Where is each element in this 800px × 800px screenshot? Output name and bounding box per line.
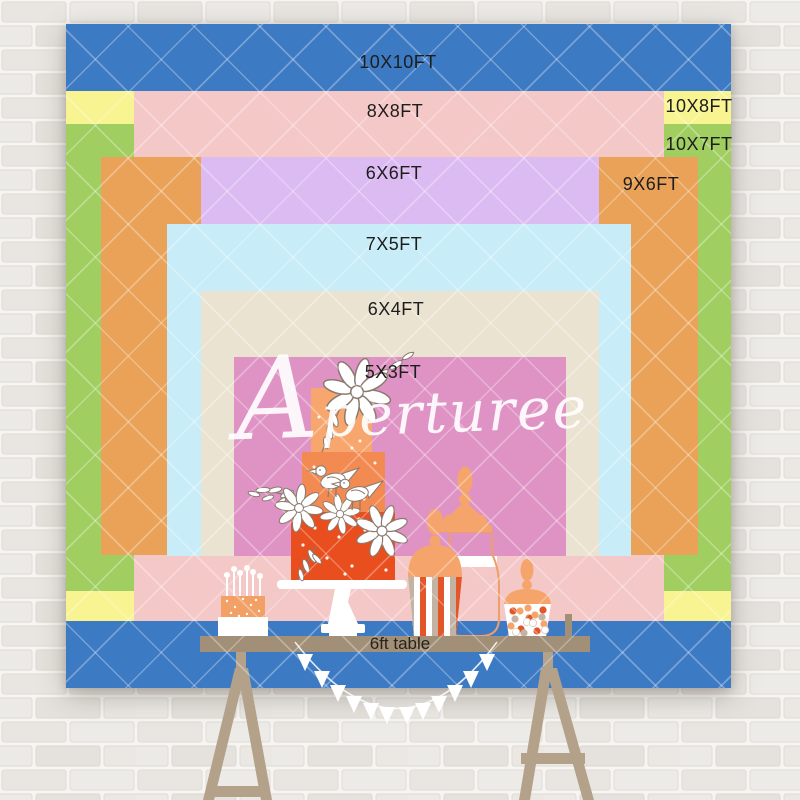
table-leg-right xyxy=(519,652,594,800)
small-cake-icon xyxy=(218,565,268,637)
cake-stand-icon xyxy=(277,580,407,637)
size-label-6x6: 6X6FT xyxy=(334,163,454,183)
size-label-6x4: 6X4FT xyxy=(336,299,456,319)
table-post xyxy=(565,614,572,638)
size-label-10x8: 10X8FT xyxy=(639,96,759,116)
size-label-9x6: 9X6FT xyxy=(591,174,711,194)
product-image: 10X10FT 8X8FT 10X8FT 6X6FT 10X7FT 7X5FT … xyxy=(0,0,800,800)
table-length-label: 6ft table xyxy=(340,636,460,652)
candy-jar-icon xyxy=(504,559,551,637)
size-label-7x5: 7X5FT xyxy=(334,234,454,254)
size-label-8x8: 8X8FT xyxy=(335,101,455,121)
jar-lid-icon xyxy=(438,467,492,533)
size-label-5x3: 5X3FT xyxy=(333,362,453,382)
bunting-garland-icon xyxy=(295,642,497,724)
table-leg-left xyxy=(203,652,272,800)
size-label-10x7: 10X7FT xyxy=(639,134,759,154)
size-label-10x10: 10X10FT xyxy=(338,52,458,72)
